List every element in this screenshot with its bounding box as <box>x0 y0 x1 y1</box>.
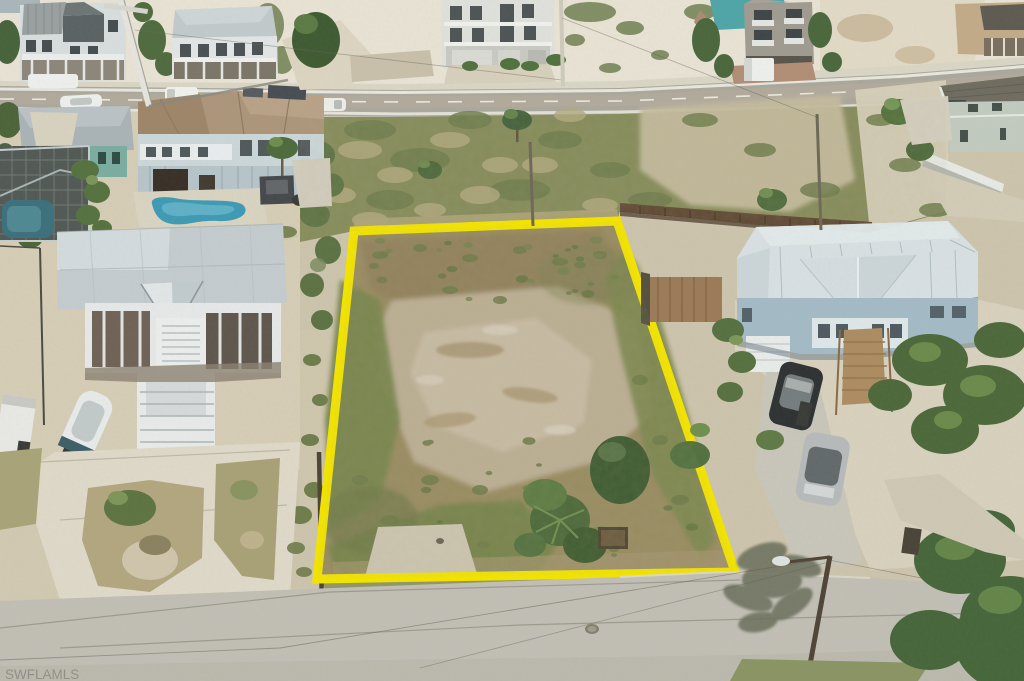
svg-text:SWFLAMLS: SWFLAMLS <box>5 667 79 681</box>
